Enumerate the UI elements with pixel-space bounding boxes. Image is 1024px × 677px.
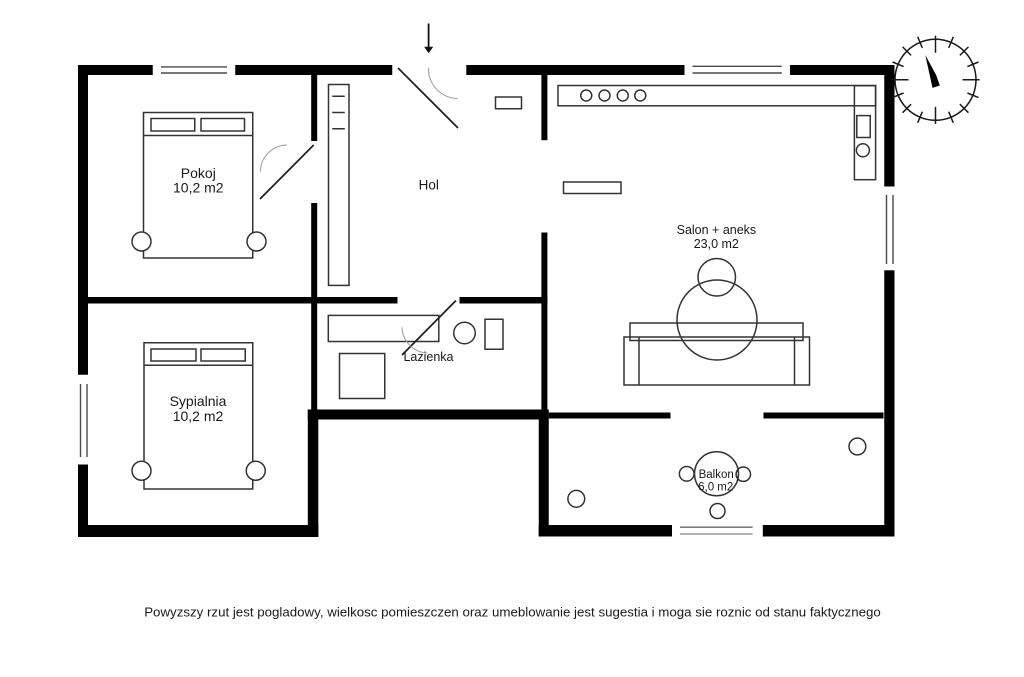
- svg-text:23,0 m2: 23,0 m2: [694, 237, 739, 251]
- svg-text:Hol: Hol: [419, 177, 439, 192]
- svg-text:Pokoj: Pokoj: [181, 165, 216, 181]
- svg-text:10,2 m2: 10,2 m2: [173, 180, 224, 196]
- svg-text:Balkon: Balkon: [699, 469, 734, 481]
- svg-text:Salon + aneks: Salon + aneks: [677, 223, 757, 237]
- svg-text:Lazienka: Lazienka: [403, 350, 453, 364]
- svg-text:10,2 m2: 10,2 m2: [173, 408, 224, 424]
- svg-text:Sypialnia: Sypialnia: [170, 393, 227, 409]
- svg-text:6,0 m2: 6,0 m2: [698, 482, 733, 494]
- svg-text:Powyzszy rzut jest pogladowy,: Powyzszy rzut jest pogladowy, wielkosc p…: [144, 604, 881, 619]
